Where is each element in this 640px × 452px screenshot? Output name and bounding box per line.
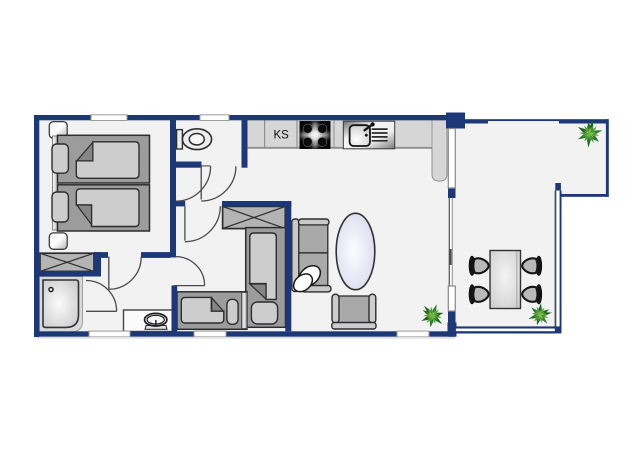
svg-text:KS: KS: [274, 129, 290, 141]
